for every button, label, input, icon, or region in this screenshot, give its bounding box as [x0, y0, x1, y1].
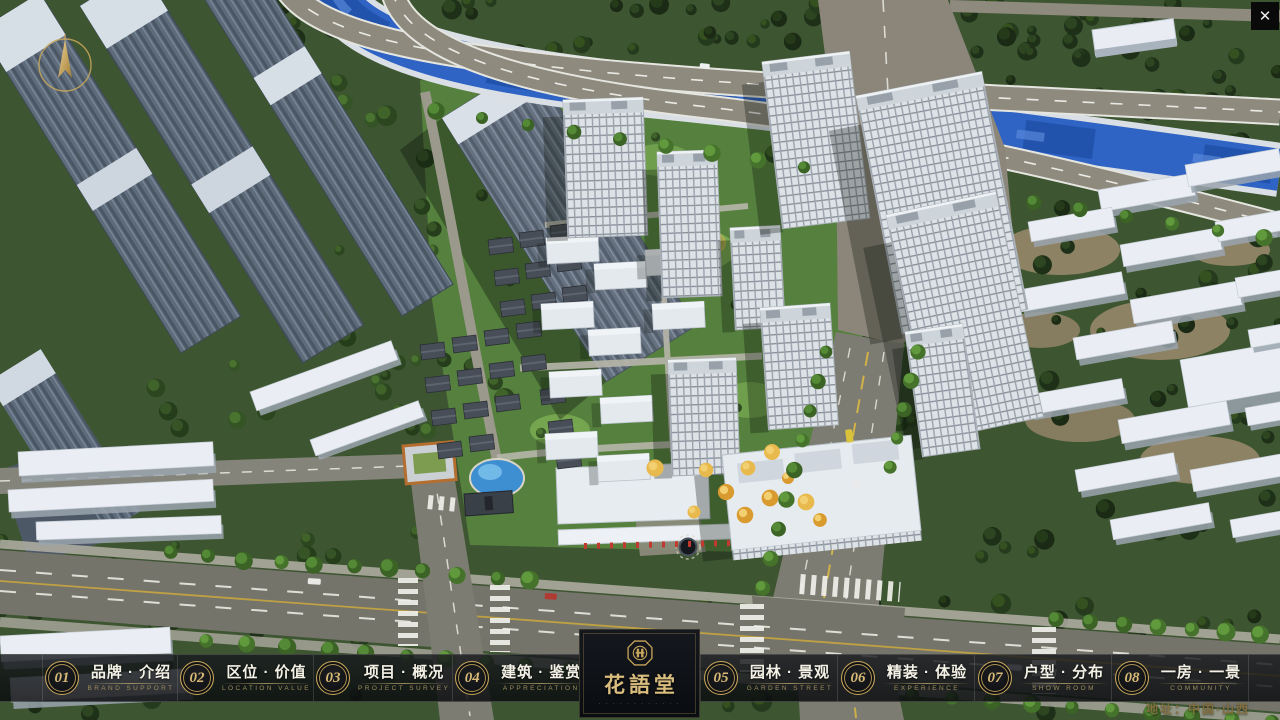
- nav-title-01: 品牌 · 介绍: [91, 664, 171, 681]
- nav-subtitle-02: LOCATION VALUE: [222, 685, 311, 692]
- nav-subtitle-08: COMMUNITY: [1170, 685, 1232, 692]
- nav-text-01: 品牌 · 介绍 BRAND SUPPORT: [87, 664, 175, 692]
- logo-seal-icon: [627, 640, 653, 666]
- nav-badge-06: 06: [841, 661, 875, 695]
- nav-item-location-value[interactable]: 02 区位 · 价值 LOCATION VALUE: [177, 655, 313, 701]
- nav-divider-04: [497, 683, 585, 684]
- nav-divider-03: [358, 683, 450, 684]
- nav-badge-02: 02: [180, 661, 214, 695]
- nav-title-03: 项目 · 概况: [364, 664, 444, 681]
- nav-badge-03: 03: [316, 661, 350, 695]
- nav-subtitle-04: APPRECIATION: [503, 685, 580, 692]
- nav-text-02: 区位 · 价值 LOCATION VALUE: [222, 664, 311, 692]
- nav-divider-05: [746, 683, 834, 684]
- nav-group-right: 05 园林 · 景观 GARDEN STREET 06 精装 · 体验 EXPE…: [700, 655, 1249, 701]
- nav-item-room-view[interactable]: 08 一房 · 一景 COMMUNITY: [1111, 655, 1248, 701]
- address-text: 地址：中国·山西: [1146, 700, 1250, 717]
- nav-title-08: 一房 · 一景: [1161, 664, 1241, 681]
- nav-divider-01: [87, 683, 175, 684]
- nav-divider-06: [883, 683, 971, 684]
- nav-text-03: 项目 · 概况 PROJECT SURVEY: [358, 664, 450, 692]
- logo-inner: 花語堂 · · · · · · · · · · · ·: [580, 630, 699, 717]
- logo-microtext: · · · · · · · · · · · ·: [599, 702, 680, 707]
- nav-badge-07: 07: [978, 661, 1012, 695]
- nav-subtitle-05: GARDEN STREET: [747, 685, 833, 692]
- nav-badge-04: 04: [455, 661, 489, 695]
- nav-badge-01: 01: [45, 661, 79, 695]
- nav-item-brand-intro[interactable]: 01 品牌 · 介绍 BRAND SUPPORT: [42, 655, 177, 701]
- nav-text-06: 精装 · 体验 EXPERIENCE: [883, 664, 971, 692]
- nav-title-07: 户型 · 分布: [1024, 664, 1104, 681]
- nav-badge-08: 08: [1115, 661, 1149, 695]
- nav-text-07: 户型 · 分布 SHOW ROOM: [1020, 664, 1108, 692]
- nav-subtitle-07: SHOW ROOM: [1032, 685, 1096, 692]
- nav-divider-02: [222, 683, 311, 684]
- masterplan-3d-render: [0, 0, 1280, 720]
- compass-north-icon: [34, 34, 96, 96]
- nav-text-08: 一房 · 一景 COMMUNITY: [1157, 664, 1245, 692]
- logo-title: 花語堂: [600, 669, 679, 699]
- nav-divider-07: [1020, 683, 1108, 684]
- nav-title-02: 区位 · 价值: [226, 664, 306, 681]
- nav-item-floorplan-distribution[interactable]: 07 户型 · 分布 SHOW ROOM: [974, 655, 1111, 701]
- nav-item-interior-experience[interactable]: 06 精装 · 体验 EXPERIENCE: [837, 655, 974, 701]
- nav-title-05: 园林 · 景观: [750, 664, 830, 681]
- sales-presentation-window: ✕ 01 品牌 · 介绍 BRAND SUPPORT 02 区: [0, 0, 1280, 720]
- close-button[interactable]: ✕: [1251, 2, 1279, 30]
- nav-item-garden-landscape[interactable]: 05 园林 · 景观 GARDEN STREET: [700, 655, 837, 701]
- nav-title-06: 精装 · 体验: [887, 664, 967, 681]
- nav-divider-08: [1157, 683, 1245, 684]
- project-logo[interactable]: 花語堂 · · · · · · · · · · · ·: [579, 629, 700, 718]
- nav-text-04: 建筑 · 鉴赏 APPRECIATION: [497, 664, 585, 692]
- nav-subtitle-06: EXPERIENCE: [894, 685, 960, 692]
- nav-title-04: 建筑 · 鉴赏: [501, 664, 581, 681]
- nav-item-project-survey[interactable]: 03 项目 · 概况 PROJECT SURVEY: [313, 655, 452, 701]
- nav-subtitle-01: BRAND SUPPORT: [87, 685, 174, 692]
- nav-subtitle-03: PROJECT SURVEY: [358, 685, 450, 692]
- nav-badge-05: 05: [704, 661, 738, 695]
- nav-item-architecture[interactable]: 04 建筑 · 鉴赏 APPRECIATION: [452, 655, 587, 701]
- nav-group-left: 01 品牌 · 介绍 BRAND SUPPORT 02 区位 · 价值 LOCA…: [42, 655, 580, 701]
- nav-text-05: 园林 · 景观 GARDEN STREET: [746, 664, 834, 692]
